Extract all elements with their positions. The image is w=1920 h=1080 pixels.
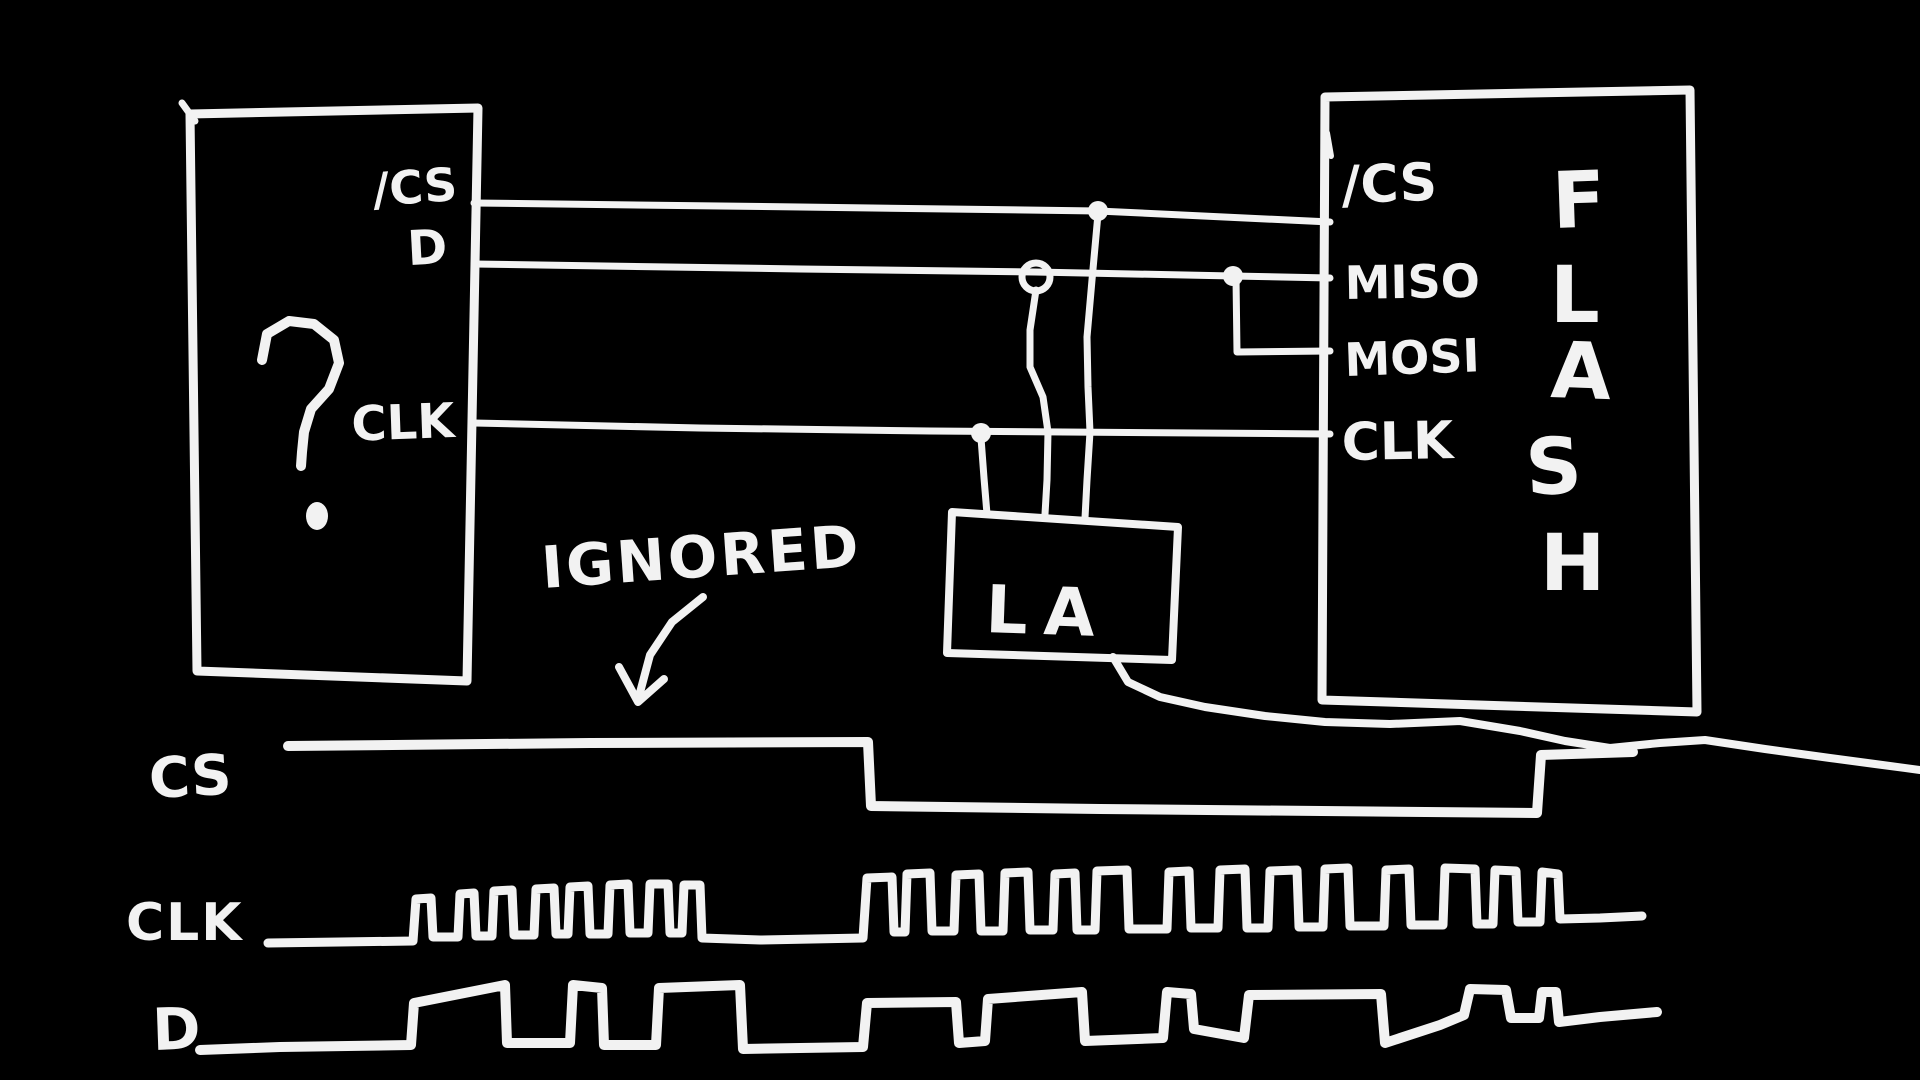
cs-wire [474,203,1330,222]
flash-letter-f: F [1551,155,1607,247]
device-pin-d-label: D [406,219,449,277]
cs-tap-wire [1085,214,1098,518]
la-box-label: LA [984,571,1112,652]
cs-tap-dot [1088,201,1108,221]
ignored-annotation: IGNORED [539,512,863,602]
whiteboard: /CS D CLK /CS MISO MOSI CLK F L A S H LA… [0,0,1920,1080]
cs-waveform [288,742,1633,813]
flash-box: /CS MISO MOSI CLK F L A S H [1340,153,1612,609]
ignored-arrow-shaft [638,597,703,700]
timing-d-label: D [151,994,202,1064]
timing-clk-label: CLK [126,893,244,953]
d-wire [474,264,1330,278]
question-mark-dot [306,502,328,530]
flash-vertical-name: F L A S H [1523,155,1613,609]
device-pin-cs-label: /CS [371,157,459,217]
la-box: LA [984,571,1112,652]
schematic-canvas: /CS D CLK /CS MISO MOSI CLK F L A S H LA… [0,0,1920,1080]
flash-pin-miso-label: MISO [1344,254,1480,310]
clk-waveform [268,868,1642,943]
flash-letter-s: S [1523,421,1584,514]
device-pin-clk-label: CLK [351,393,458,453]
clk-tap-dot [971,423,991,443]
miso-mosi-jog-wire [1236,278,1330,352]
d-junction-dot [1223,266,1243,286]
la-cable [1113,657,1920,770]
question-mark-stroke [262,321,339,466]
flash-box-corner-tick [1327,133,1331,156]
clk-wire [474,423,1330,434]
flash-letter-h: H [1540,519,1605,609]
d-tap-wire [1030,290,1048,514]
flash-letter-a: A [1549,326,1612,418]
clk-tap-wire [981,438,987,514]
flash-pin-clk-label: CLK [1341,411,1455,473]
flash-pin-cs-label: /CS [1340,153,1438,216]
timing-cs-label: CS [147,743,233,812]
flash-pin-mosi-label: MOSI [1343,328,1480,387]
device-box: /CS D CLK [351,157,459,452]
timing-diagram: CS CLK D [126,743,244,1064]
d-waveform [200,985,1657,1050]
